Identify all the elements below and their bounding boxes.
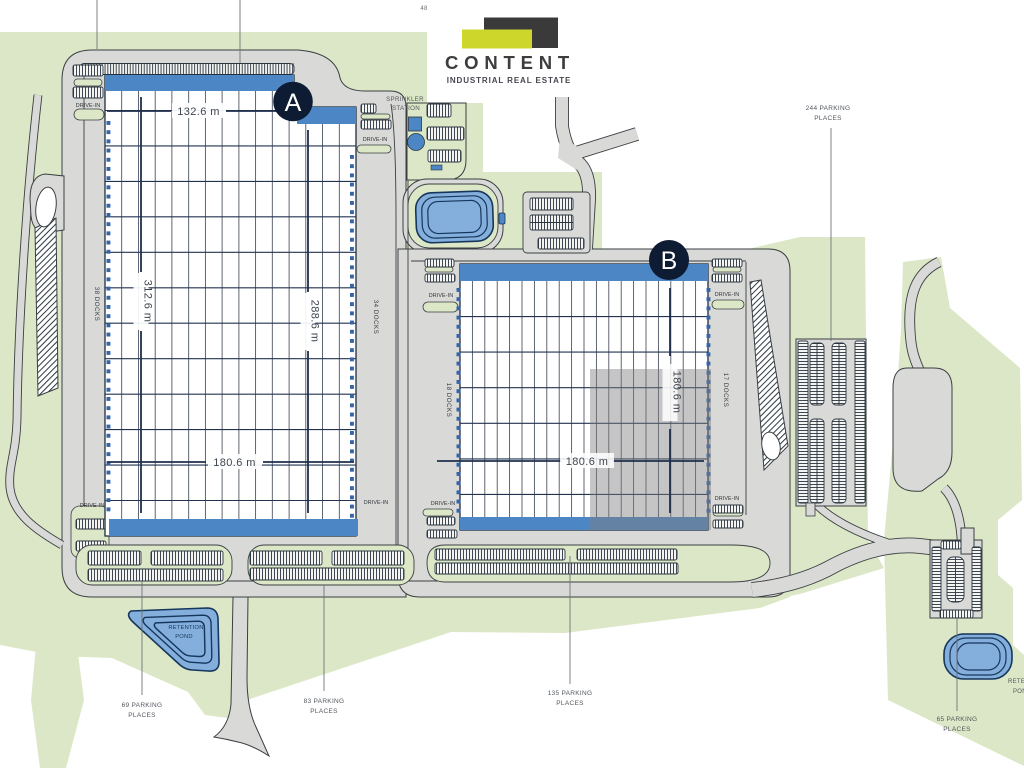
svg-text:180.6 m: 180.6 m [566, 456, 609, 468]
svg-text:DRIVE-IN: DRIVE-IN [364, 500, 388, 506]
svg-text:RETENTION: RETENTION [1008, 679, 1024, 685]
svg-text:DRIVE-IN: DRIVE-IN [80, 503, 104, 509]
svg-text:STATION: STATION [392, 105, 420, 112]
svg-text:DRIVE-IN: DRIVE-IN [715, 292, 739, 298]
svg-text:135 PARKING: 135 PARKING [548, 690, 593, 697]
svg-text:PLACES: PLACES [943, 726, 971, 733]
svg-text:POND: POND [1013, 689, 1024, 695]
svg-text:DRIVE-IN: DRIVE-IN [715, 496, 739, 502]
svg-text:18 DOCKS: 18 DOCKS [445, 383, 452, 418]
svg-text:RETENTION: RETENTION [168, 625, 203, 631]
svg-text:POND: POND [175, 634, 193, 640]
svg-text:SPRINKLER: SPRINKLER [386, 96, 424, 103]
svg-text:DRIVE-IN: DRIVE-IN [431, 501, 455, 507]
svg-text:PLACES: PLACES [128, 712, 156, 719]
svg-text:180.6 m: 180.6 m [671, 371, 683, 414]
svg-text:38 DOCKS: 38 DOCKS [93, 287, 100, 322]
svg-text:83 PARKING: 83 PARKING [304, 698, 345, 705]
svg-text:312.6 m: 312.6 m [142, 280, 154, 323]
svg-text:17 DOCKS: 17 DOCKS [722, 373, 729, 408]
svg-text:INDUSTRIAL REAL ESTATE: INDUSTRIAL REAL ESTATE [447, 76, 572, 85]
svg-text:A: A [285, 89, 302, 117]
svg-text:CONTENT: CONTENT [445, 52, 575, 73]
svg-text:288.6 m: 288.6 m [309, 300, 321, 343]
svg-text:65 PARKING: 65 PARKING [937, 716, 978, 723]
svg-text:PLACES: PLACES [814, 115, 842, 122]
svg-text:69 PARKING: 69 PARKING [122, 702, 163, 709]
svg-text:PLACES: PLACES [310, 708, 338, 715]
svg-text:244 PARKING: 244 PARKING [806, 105, 851, 112]
svg-text:48: 48 [420, 6, 428, 12]
svg-text:132.6 m: 132.6 m [177, 106, 220, 118]
svg-text:180.6 m: 180.6 m [213, 457, 256, 469]
svg-text:B: B [661, 247, 678, 275]
svg-text:DRIVE-IN: DRIVE-IN [76, 103, 100, 109]
svg-text:DRIVE-IN: DRIVE-IN [429, 293, 453, 299]
svg-text:DRIVE-IN: DRIVE-IN [363, 137, 387, 143]
svg-text:PLACES: PLACES [556, 700, 584, 707]
svg-text:34 DOCKS: 34 DOCKS [372, 300, 379, 335]
